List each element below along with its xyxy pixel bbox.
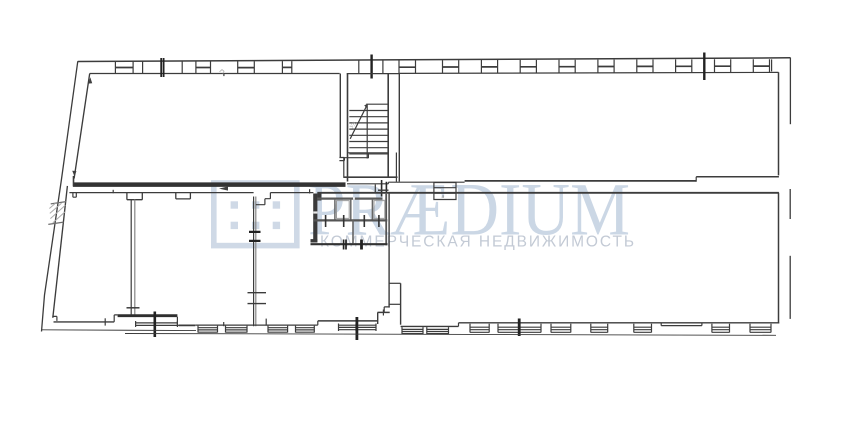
- svg-text:a: a: [442, 194, 445, 200]
